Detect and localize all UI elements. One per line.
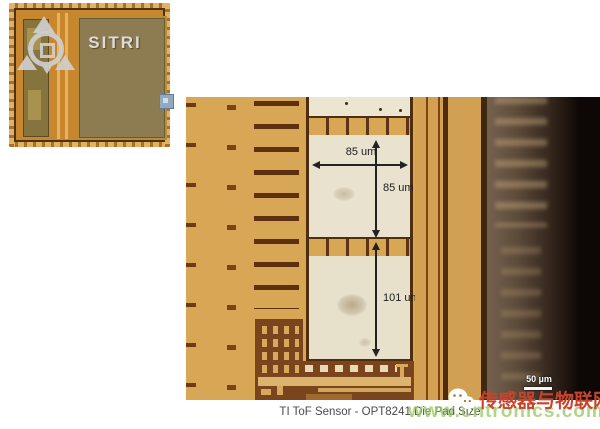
arrowhead-up [372,140,380,148]
sitri-logo-triangle-down-icon [42,66,52,74]
arrow-line [375,146,377,232]
metal-stripe [318,388,411,392]
arrowhead-down [372,230,380,238]
bond-pad-column [306,97,413,361]
arrowhead-right [400,161,408,169]
metal-strip-amber [415,97,443,400]
background-black-edge [563,97,600,400]
metal-dash-column-mid [227,97,236,400]
pad-smudge [333,187,355,201]
resize-handle-inner [163,98,168,103]
pad-width-label: 85 um [321,146,401,158]
sitri-logo-triangle-left-icon [17,55,37,70]
scale-bar-label: 50 µm [520,374,558,384]
pad-probe-mark [379,108,382,111]
die-edge-blur-zone [487,97,563,400]
die-metal-line [65,13,68,139]
metal-dash-column-left [186,97,196,400]
die-overview-photo: SITRI [9,3,170,147]
pad-width-arrow [312,160,408,170]
pad-probe-mark [399,109,402,112]
arrowhead-left [312,161,320,169]
arrowhead-up [372,242,380,250]
die-pad-micrograph: 85 um 85 um 101 um [186,97,600,400]
metal-bit [261,389,271,395]
bond-pad-top-partial [309,97,410,118]
pad-height-arrow [371,140,381,238]
metal-dash-column-right [254,101,299,309]
metal-strip-amber [448,97,481,400]
metal-stripe [306,394,352,400]
dashed-metal-line [305,365,397,372]
t-mark-top [396,364,408,367]
pad-probe-mark [345,102,348,105]
brand-watermark-text: 传感器与物联网 [479,386,600,413]
metal-band [258,377,411,386]
sitri-logo-square-icon [40,43,55,58]
via-pattern [259,324,299,376]
bottom-pad-height-arrow [371,242,381,357]
bond-pad-101um [309,256,410,361]
blur-stripes [495,97,547,227]
arrow-line [318,164,402,166]
pad-smudge [359,338,371,347]
pad-height-label: 85 um [383,182,414,194]
sitri-logo-text: SITRI [71,33,159,53]
die-bondpad-edge-bottom [9,142,170,147]
pad-connector-upper [309,118,410,135]
arrow-line [375,248,377,351]
die-circuit-blob [28,90,41,120]
pad-smudge [337,294,367,316]
brand-watermark: 传感器与物联网 [448,386,600,413]
sitri-logo-triangle-right-icon [55,55,75,70]
blur-stripes [501,247,541,387]
wechat-icon [448,388,475,411]
die-metal-line [57,13,60,139]
metal-line [438,97,440,400]
pad-connector-lower [309,239,410,256]
arrowhead-down [372,349,380,357]
via-array-block [255,319,303,400]
metal-line [426,97,428,400]
screenshot-root: SITRI [0,0,600,429]
resize-handle-icon [159,94,174,109]
metal-bit [277,386,283,395]
